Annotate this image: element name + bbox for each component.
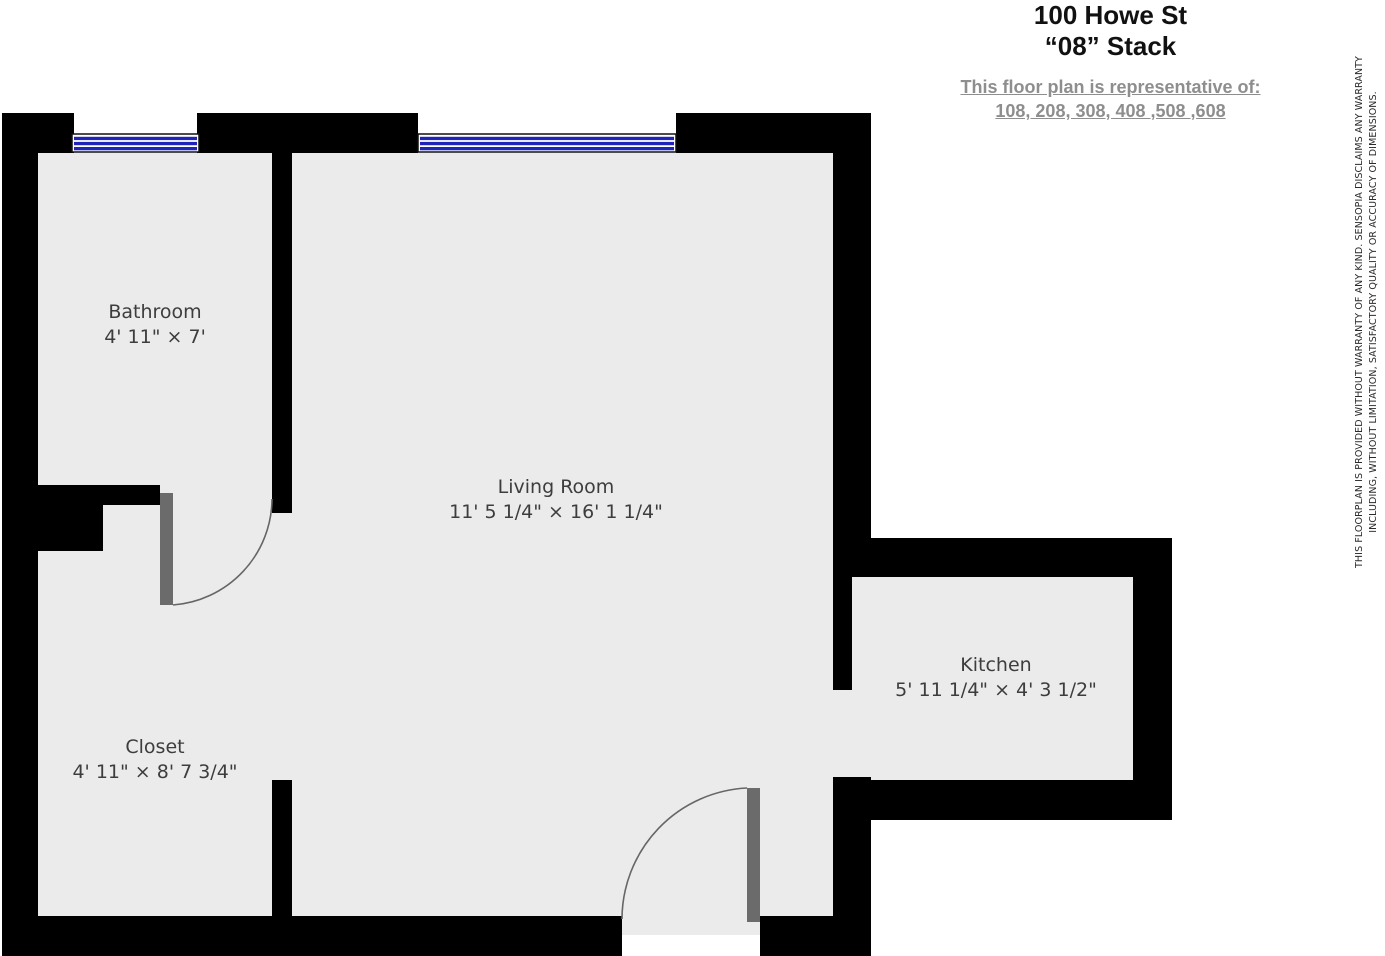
entry-door-threshold bbox=[622, 916, 760, 935]
representative-note: This floor plan is representative of: 10… bbox=[943, 75, 1278, 123]
window-pane-line bbox=[74, 147, 197, 150]
closet-dimensions: 4' 11" × 8' 7 3/4" bbox=[72, 760, 237, 785]
wall-closet-living-divider bbox=[272, 780, 292, 956]
living-room-window bbox=[418, 134, 676, 152]
title-block: 100 Howe St “08” Stack This floor plan i… bbox=[943, 0, 1278, 123]
bathroom-window-glazing bbox=[74, 137, 197, 151]
wall-left-chase bbox=[2, 503, 103, 551]
bathroom-label: Bathroom 4' 11" × 7' bbox=[104, 300, 206, 350]
representative-note-line1: This floor plan is representative of: bbox=[943, 75, 1278, 99]
window-pane-line bbox=[74, 142, 197, 145]
floorplan-page: Bathroom 4' 11" × 7' Living Room 11' 5 1… bbox=[0, 0, 1385, 956]
living-room-dimensions: 11' 5 1/4" × 16' 1 1/4" bbox=[449, 500, 663, 525]
wall-bathroom-bottom bbox=[2, 485, 160, 505]
living-room-label: Living Room 11' 5 1/4" × 16' 1 1/4" bbox=[449, 475, 663, 525]
floorplan-drawing bbox=[0, 0, 1385, 956]
kitchen-dimensions: 5' 11 1/4" × 4' 3 1/2" bbox=[895, 678, 1097, 703]
wall-top-middle bbox=[197, 113, 418, 153]
living-room-window-glazing bbox=[420, 137, 674, 151]
bathroom-dimensions: 4' 11" × 7' bbox=[104, 325, 206, 350]
representative-note-line2: 108, 208, 308, 408 ,508 ,608 bbox=[943, 99, 1278, 123]
entry-door-leaf bbox=[747, 788, 760, 922]
closet-label: Closet 4' 11" × 8' 7 3/4" bbox=[72, 735, 237, 785]
wall-right-upper bbox=[833, 113, 871, 538]
disclaimer-line2: INCLUDING, WITHOUT LIMITATION, SATISFACT… bbox=[1367, 52, 1381, 572]
window-pane-line bbox=[74, 137, 197, 140]
disclaimer-line1: THIS FLOORPLAN IS PROVIDED WITHOUT WARRA… bbox=[1353, 52, 1367, 572]
window-pane-line bbox=[420, 142, 674, 145]
bathroom-name: Bathroom bbox=[104, 300, 206, 325]
window-pane-line bbox=[420, 137, 674, 140]
wall-kitchen-right bbox=[1133, 538, 1172, 820]
floor-main-area bbox=[38, 153, 833, 917]
bathroom-window bbox=[72, 134, 199, 152]
wall-kitchen-left bbox=[833, 577, 852, 690]
kitchen-name: Kitchen bbox=[895, 653, 1097, 678]
window-pane-line bbox=[420, 147, 674, 150]
wall-kitchen-top bbox=[833, 538, 1172, 577]
wall-bathroom-living-divider bbox=[272, 113, 292, 513]
living-room-name: Living Room bbox=[449, 475, 663, 500]
page-title-line2: “08” Stack bbox=[943, 31, 1278, 62]
bathroom-door-leaf bbox=[160, 493, 173, 605]
disclaimer-text: THIS FLOORPLAN IS PROVIDED WITHOUT WARRA… bbox=[1353, 52, 1381, 572]
wall-bottom-left bbox=[2, 916, 622, 956]
page-title-line1: 100 Howe St bbox=[943, 0, 1278, 31]
wall-kitchen-bottom bbox=[833, 780, 1172, 820]
closet-name: Closet bbox=[72, 735, 237, 760]
kitchen-label: Kitchen 5' 11 1/4" × 4' 3 1/2" bbox=[895, 653, 1097, 703]
